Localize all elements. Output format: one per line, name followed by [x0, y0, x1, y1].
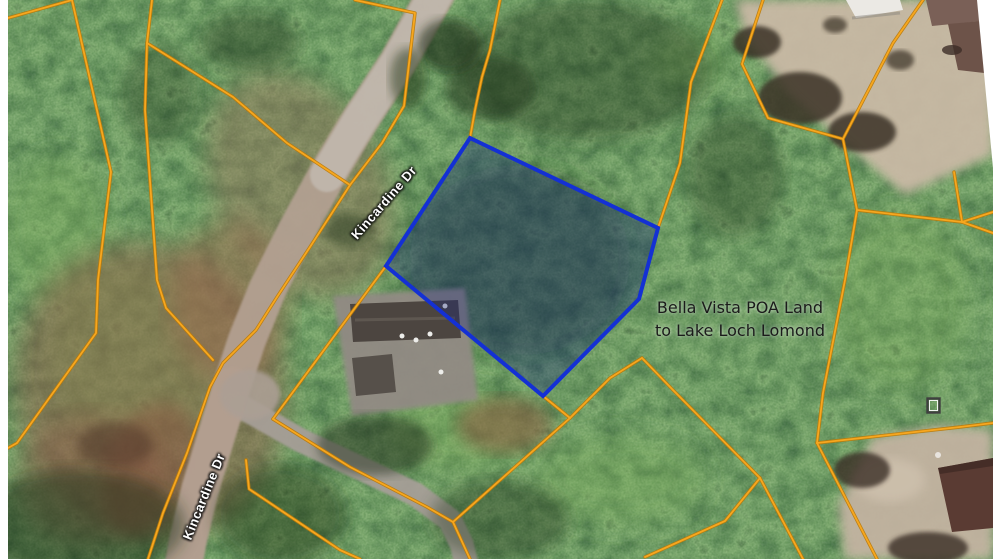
parcel-map-image: Kincardine Dr Kincardine Dr Bella Vista … — [0, 0, 993, 559]
left-white-margin — [0, 0, 8, 559]
parcel-annotation: Bella Vista POA Land to Lake Loch Lomond — [648, 296, 832, 342]
satellite-map-canvas — [0, 0, 993, 559]
annotation-line-1: Bella Vista POA Land — [648, 296, 832, 319]
annotation-line-2: to Lake Loch Lomond — [648, 319, 832, 342]
